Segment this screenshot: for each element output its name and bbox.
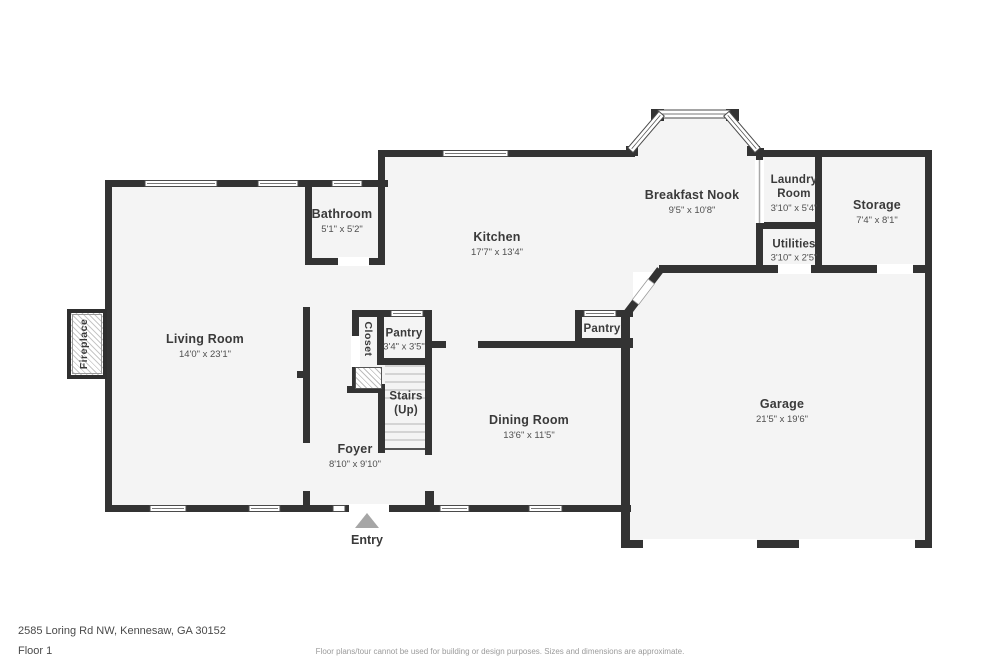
label-kitchen: Kitchen 17'7" x 13'4" [471, 230, 523, 259]
label-stairs: Stairs (Up) [389, 390, 422, 419]
label-storage: Storage 7'4" x 8'1" [853, 198, 901, 227]
label-pantry-garage: Pantry [584, 322, 621, 336]
label-entry: Entry [351, 533, 383, 547]
label-utilities: Utilities 3'10" x 2'5" [771, 237, 818, 264]
label-garage: Garage 21'5" x 19'6" [756, 397, 808, 426]
label-bathroom: Bathroom 5'1" x 5'2" [312, 207, 373, 236]
label-breakfast-nook: Breakfast Nook 9'5" x 10'8" [645, 188, 740, 217]
label-living-room: Living Room 14'0" x 23'1" [166, 332, 244, 361]
label-dining-room: Dining Room 13'6" x 11'5" [489, 413, 569, 442]
label-closet: Closet [362, 321, 374, 356]
label-foyer: Foyer 8'10" x 9'10" [329, 442, 381, 471]
label-pantry-small: Pantry 3'4" x 3'5" [383, 326, 425, 353]
entry-arrow-icon [355, 513, 379, 528]
disclaimer-text: Floor plans/tour cannot be used for buil… [0, 647, 1000, 656]
address-text: 2585 Loring Rd NW, Kennesaw, GA 30152 [18, 625, 226, 637]
floor-plan-drawing [0, 0, 1000, 667]
label-fireplace: Fireplace [78, 319, 90, 370]
stair-landing-hatch [355, 367, 382, 389]
floor-plan-page: Living Room 14'0" x 23'1" Bathroom 5'1" … [0, 0, 1000, 667]
label-laundry-room: Laundry Room 3'10" x 5'4" [756, 173, 832, 215]
